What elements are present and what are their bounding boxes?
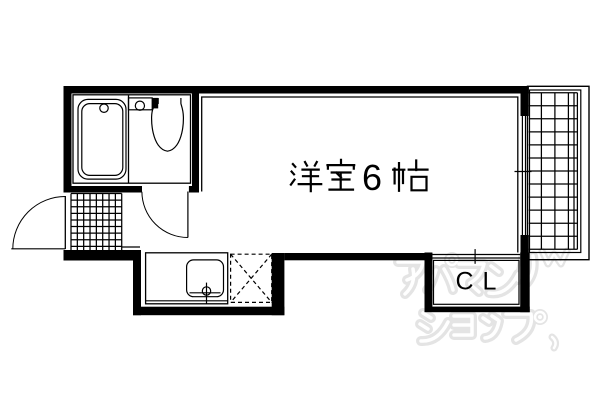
- svg-text:6: 6: [362, 157, 382, 198]
- svg-text:CL: CL: [456, 268, 506, 296]
